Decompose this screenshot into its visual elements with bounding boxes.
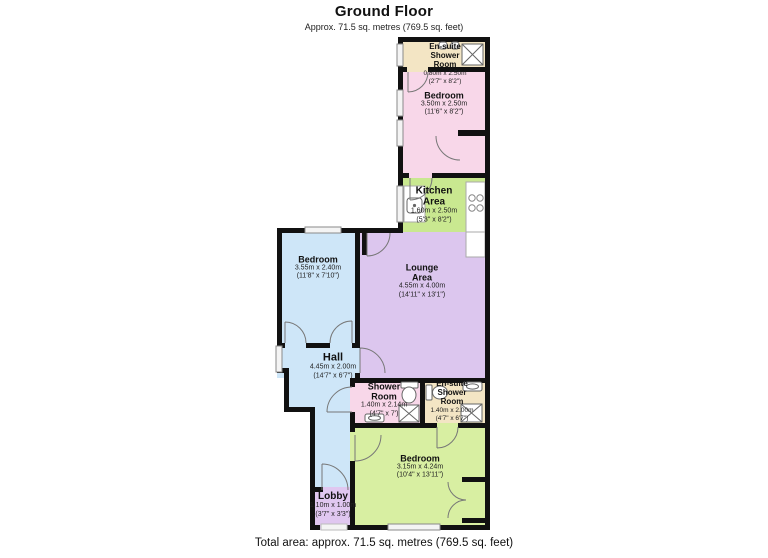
room-label-bedroom-top: Bedroom 3.50m x 2.50m (11'6" x 8'2") — [421, 91, 467, 118]
window — [397, 186, 403, 222]
room-dims-metric: 1.40m x 2.00m — [431, 407, 474, 415]
room-label-kitchen: Kitchen Area 1.60m x 2.50m (5'3" x 8'2") — [411, 185, 457, 224]
room-dims-metric: 3.55m x 2.40m — [295, 265, 341, 273]
room-label-hall: Hall 4.45m x 2.00m (14'7" x 6'7") — [310, 351, 356, 380]
room-name: Hall — [310, 351, 356, 363]
room-name: Lounge Area — [399, 263, 445, 283]
room-dims-metric: 3.50m x 2.50m — [421, 101, 467, 109]
entrance-opening — [321, 524, 347, 530]
window — [397, 90, 403, 116]
room-bedroom-left — [277, 228, 360, 348]
room-dims-imperial: (14'11" x 13'1") — [399, 291, 445, 299]
room-dims-imperial: (14'7" x 6'7") — [310, 372, 356, 380]
room-dims-imperial: (11'6" x 8'2") — [421, 109, 467, 117]
window — [397, 44, 403, 66]
room-name: En-suite Shower Room — [424, 43, 467, 70]
room-dims-metric: 1.40m x 2.14m — [361, 402, 407, 410]
room-dims-imperial: (10'4" x 13'11") — [397, 472, 443, 480]
room-bedroom-top — [398, 72, 490, 178]
room-dims-metric: 4.45m x 2.00m — [310, 364, 356, 372]
window — [397, 120, 403, 146]
window — [305, 227, 341, 233]
room-name: Bedroom — [295, 255, 341, 265]
room-label-shower-room: Shower Room 1.40m x 2.14m (4'7" x 7') — [361, 382, 407, 419]
room-dims-metric: 0.80m x 2.50m — [424, 70, 467, 78]
total-area-text: Total area: approx. 71.5 sq. metres (769… — [0, 537, 768, 549]
room-dims-imperial: (3'7" x 3'3") — [310, 511, 356, 519]
room-name: Shower Room — [361, 382, 407, 402]
room-name: En-suite Shower Room — [431, 380, 474, 407]
room-dims-metric: 3.15m x 4.24m — [397, 464, 443, 472]
room-label-ensuite-bottom: En-suite Shower Room 1.40m x 2.00m (4'7"… — [431, 380, 474, 422]
room-dims-imperial: (2'7" x 8'2") — [424, 77, 467, 85]
room-name: Bedroom — [421, 91, 467, 101]
room-dims-metric: 4.55m x 4.00m — [399, 283, 445, 291]
room-dims-imperial: (4'7" x 6'7") — [431, 414, 474, 422]
room-dims-imperial: (11'8" x 7'10") — [295, 273, 341, 281]
room-name: Lobby — [310, 491, 356, 502]
window — [388, 524, 440, 530]
floor-plan-drawing — [0, 0, 768, 558]
room-name: Kitchen Area — [411, 185, 457, 207]
room-dims-metric: 1.60m x 2.50m — [411, 208, 457, 216]
window — [276, 346, 282, 372]
room-label-lobby: Lobby 1.10m x 1.00m (3'7" x 3'3") — [310, 491, 356, 519]
room-label-lounge: Lounge Area 4.55m x 4.00m (14'11" x 13'1… — [399, 263, 445, 300]
room-name: Bedroom — [397, 454, 443, 464]
room-label-bedroom-bottom: Bedroom 3.15m x 4.24m (10'4" x 13'11") — [397, 454, 443, 481]
room-dims-imperial: (4'7" x 7') — [361, 410, 407, 418]
room-label-bedroom-left: Bedroom 3.55m x 2.40m (11'8" x 7'10") — [295, 255, 341, 282]
room-hall-corridor2 — [310, 407, 355, 492]
floorplan-page: Ground Floor Approx. 71.5 sq. metres (76… — [0, 0, 768, 558]
room-dims-imperial: (5'3" x 8'2") — [411, 216, 457, 224]
room-dims-metric: 1.10m x 1.00m — [310, 502, 356, 510]
room-label-ensuite-top: En-suite Shower Room 0.80m x 2.50m (2'7"… — [424, 43, 467, 85]
